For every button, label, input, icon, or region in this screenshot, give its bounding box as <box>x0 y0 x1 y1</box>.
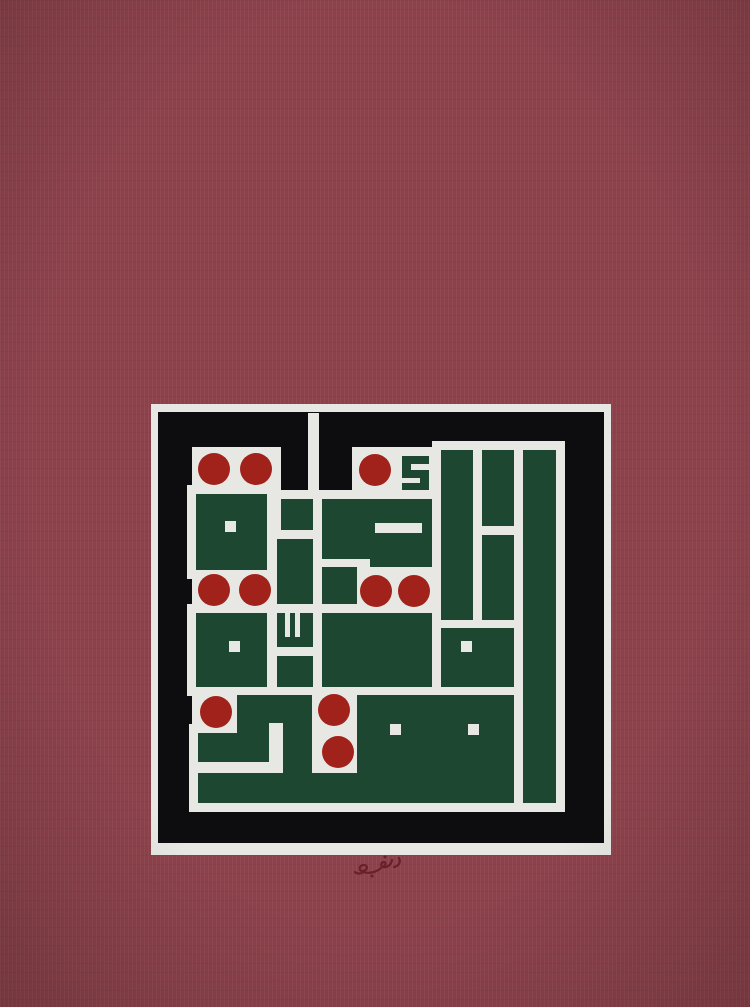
photo-vignette <box>0 0 750 1007</box>
artwork-photo <box>0 0 750 1007</box>
artwork-canvas <box>0 0 750 1007</box>
